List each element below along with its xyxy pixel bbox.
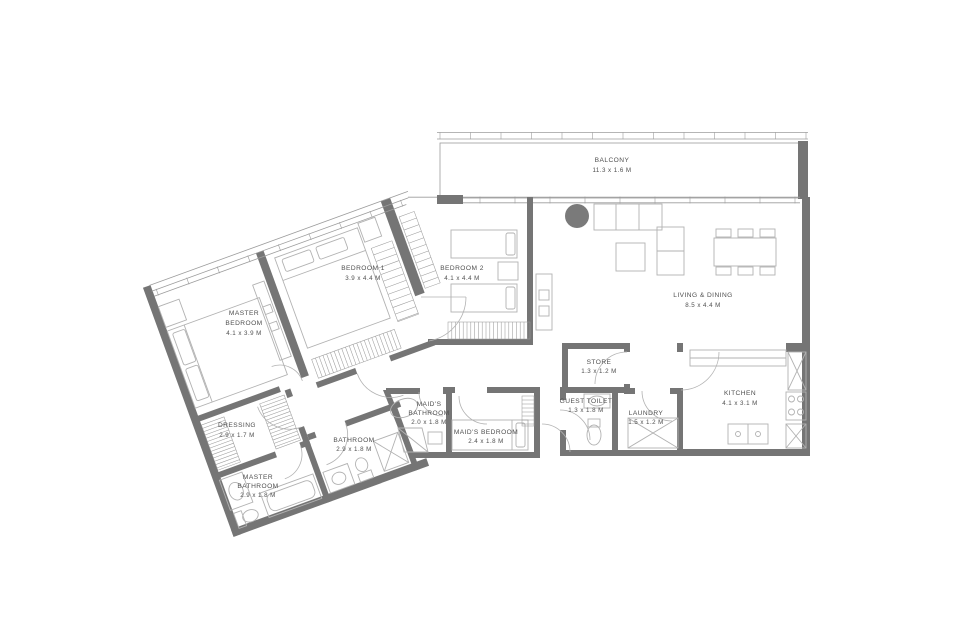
- column: [565, 204, 589, 228]
- room-label-living: LIVING & DINING: [673, 292, 733, 299]
- lounge-chair: [657, 227, 684, 275]
- room-label-master-bedroom: MASTER: [229, 310, 259, 317]
- room-label-laundry: LAUNDRY: [629, 410, 664, 417]
- room-label-balcony: BALCONY: [595, 157, 630, 164]
- door-arc: [276, 445, 309, 478]
- tv-unit: [536, 274, 552, 330]
- twin-bed: [451, 284, 517, 312]
- coffee-table: [616, 243, 645, 271]
- room-label-guest-toilet: GUEST TOILET: [560, 398, 613, 405]
- room-label-master-bathroom: MASTER: [243, 474, 273, 481]
- sofa: [594, 204, 662, 230]
- dressing-wardrobe: [260, 395, 301, 449]
- kitchen-bottom-wall: [683, 449, 810, 456]
- svg-text:2.0 x 1.8 M: 2.0 x 1.8 M: [411, 419, 447, 426]
- wardrobe: [312, 329, 402, 378]
- svg-text:BATHROOM: BATHROOM: [237, 483, 278, 490]
- bedroom2-furniture: [421, 230, 530, 341]
- svg-text:BATHROOM: BATHROOM: [408, 410, 449, 417]
- room-label-store: STORE: [587, 359, 612, 366]
- door-arc: [429, 297, 466, 341]
- room-label-bedroom2: BEDROOM 2: [440, 265, 484, 272]
- room-label-bedroom1: BEDROOM 1: [341, 265, 385, 272]
- floor-plan-page: BALCONY 11.3 x 1.6 M LIVING & DINING 8.5…: [0, 0, 975, 640]
- twin-bed: [451, 230, 517, 258]
- floor-plan-drawing: BALCONY 11.3 x 1.6 M LIVING & DINING 8.5…: [0, 0, 975, 640]
- nightstand: [498, 262, 518, 280]
- svg-text:2.9 x 1.7 M: 2.9 x 1.7 M: [219, 432, 255, 439]
- room-label-dressing: DRESSING: [218, 422, 256, 429]
- door-arc: [357, 361, 403, 407]
- dining-table: [714, 229, 776, 275]
- svg-text:4.1 x 4.4 M: 4.1 x 4.4 M: [444, 275, 480, 282]
- svg-text:4.1 x 3.9 M: 4.1 x 3.9 M: [226, 330, 262, 337]
- svg-text:1.3 x 1.8 M: 1.3 x 1.8 M: [568, 407, 604, 414]
- svg-text:11.3 x 1.6 M: 11.3 x 1.6 M: [593, 167, 632, 174]
- kitchen-sink: [728, 424, 768, 444]
- svg-text:2.4 x 1.8 M: 2.4 x 1.8 M: [468, 438, 504, 445]
- balcony: [437, 132, 808, 199]
- balcony-side-wall: [798, 141, 808, 199]
- balcony-edge-ticks: [440, 132, 806, 139]
- svg-text:2.9 x 1.8 M: 2.9 x 1.8 M: [240, 492, 276, 499]
- svg-text:8.5 x 4.4 M: 8.5 x 4.4 M: [685, 302, 721, 309]
- bedroom2-bottom-wall: [428, 339, 533, 345]
- room-label-bathroom: BATHROOM: [333, 437, 374, 444]
- door-arc: [316, 424, 357, 465]
- svg-text:2.9 x 1.8 M: 2.9 x 1.8 M: [336, 446, 372, 453]
- angled-wing: [143, 191, 499, 536]
- room-label-kitchen: KITCHEN: [724, 390, 756, 397]
- window-band-main: [408, 195, 800, 204]
- room-label-maids-bedroom: MAID'S BEDROOM: [454, 429, 518, 436]
- svg-text:1.3 x 1.2 M: 1.3 x 1.2 M: [581, 368, 617, 375]
- room-label-maids-bathroom: MAID'S: [417, 401, 442, 408]
- washbasin: [428, 432, 442, 444]
- svg-text:1.5 x 1.2 M: 1.5 x 1.2 M: [628, 419, 664, 426]
- kitchen-fixtures: [681, 350, 806, 448]
- living-dining-furniture: [536, 204, 776, 330]
- svg-text:BEDROOM: BEDROOM: [225, 320, 262, 327]
- svg-text:3.9 x 4.4 M: 3.9 x 4.4 M: [345, 275, 381, 282]
- wardrobe: [448, 322, 530, 339]
- wall-jamb: [437, 195, 463, 204]
- svg-text:4.1 x 3.1 M: 4.1 x 3.1 M: [722, 400, 758, 407]
